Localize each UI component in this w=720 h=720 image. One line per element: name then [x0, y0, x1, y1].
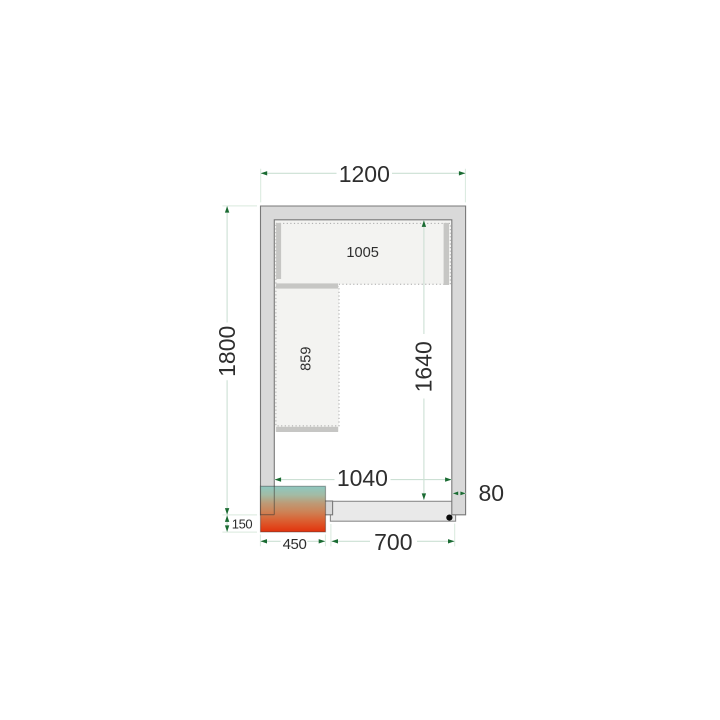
svg-text:1800: 1800: [214, 326, 240, 377]
svg-text:859: 859: [299, 347, 315, 371]
svg-text:1200: 1200: [339, 161, 390, 187]
svg-text:80: 80: [479, 480, 505, 506]
svg-text:450: 450: [283, 536, 307, 553]
svg-text:1040: 1040: [337, 465, 388, 491]
svg-text:700: 700: [374, 529, 412, 555]
svg-text:150: 150: [232, 516, 253, 531]
svg-text:1640: 1640: [411, 341, 437, 392]
svg-text:1005: 1005: [346, 245, 378, 261]
